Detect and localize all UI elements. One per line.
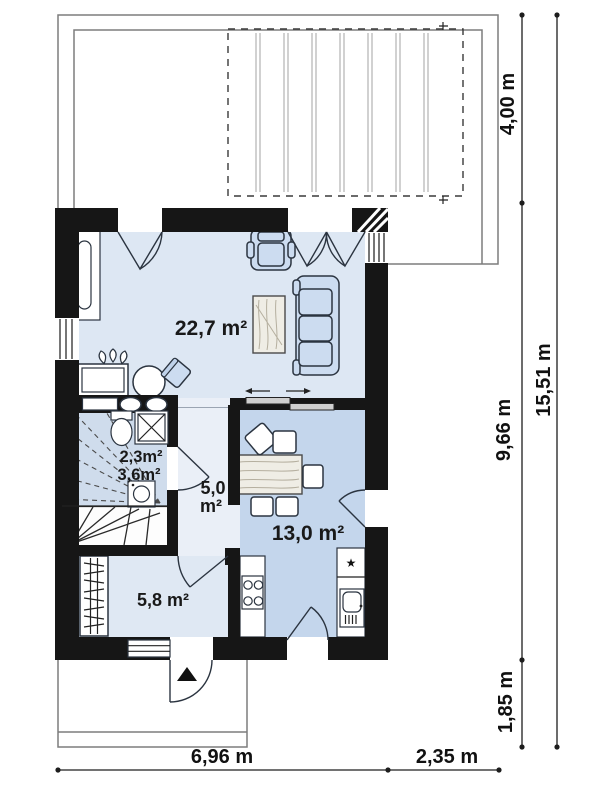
wall-vestibule-kitchen [228,556,240,637]
kitchen-label: 13,0 m² [272,522,344,545]
flame-icon [98,349,128,364]
hall-label-unit: m² [200,496,222,516]
round-table [133,366,165,398]
dim-total-depth: 15,51 m [533,343,555,416]
vanity-double-sink [79,395,178,413]
entrance-steps [128,640,170,657]
washing-machine-icon [128,481,155,507]
decking-tick-bottom [439,196,448,204]
entrance-arrow-icon [177,667,197,681]
kitchen-counter-left [240,556,265,637]
dim-house-depth: 9,66 m [493,399,515,461]
fridge-star-icon: ★ [346,556,357,570]
opening-side-door [365,490,388,527]
opening-kitchen-back-door [287,637,328,660]
kitchen-sink-icon [340,589,364,627]
opening-entrance-door [170,637,213,660]
wall-vestibule-top [55,545,178,556]
chair [276,497,298,516]
floor-plan: ★ [0,0,600,789]
chair [303,465,323,488]
toilet-icon [111,411,132,446]
sink-icon [146,398,167,412]
coffee-table [253,296,285,353]
chair [273,431,296,453]
vestibule-label: 5,8 m² [137,590,189,610]
wall-hall-kitchen [228,405,240,505]
wardrobe [80,556,108,636]
dim-terrace-side-width: 2,35 m [416,746,478,768]
living-room-label: 22,7 m² [175,317,247,340]
stove-icon [242,576,263,609]
hall-label-value: 5,0 [200,478,225,498]
sofa [293,276,339,375]
shower-icon [135,411,168,444]
armchair [247,229,295,270]
chair [251,497,273,516]
opening-terrace-door [118,208,162,232]
wc-label: 2,3m² [119,448,163,466]
sink-icon [120,398,141,412]
wall-left [55,208,79,660]
decking-boards [256,33,428,192]
bath-label: 3,6m² [117,466,161,484]
dim-house-width: 6,96 m [191,746,253,768]
kitchen-counter-right: ★ [337,548,365,637]
dim-porch-depth: 1,85 m [495,671,517,733]
dining-table [237,455,302,494]
wall-right [365,232,388,660]
dim-terrace-depth: 4,00 m [497,73,519,135]
terrace-decking [228,22,463,204]
porch-outline [58,660,247,747]
wall-bottom [55,637,388,660]
window-left [55,318,79,360]
vestibule-furniture [80,556,108,636]
